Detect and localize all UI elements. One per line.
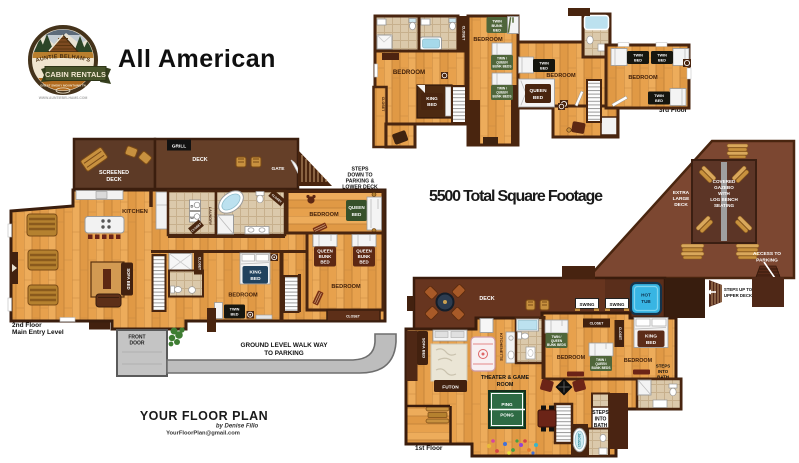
svg-text:1st Floor: 1st Floor — [415, 445, 443, 452]
svg-text:LAUNDRY: LAUNDRY — [208, 207, 212, 226]
svg-text:STEPS: STEPS — [592, 410, 609, 416]
svg-text:QUEEN: QUEEN — [356, 249, 372, 254]
svg-text:CABIN RENTALS: CABIN RENTALS — [45, 70, 106, 79]
svg-text:BEDROOM: BEDROOM — [309, 212, 339, 218]
svg-text:BUNK: BUNK — [492, 24, 503, 28]
svg-text:GROUND LEVEL WALK WAY: GROUND LEVEL WALK WAY — [241, 342, 329, 349]
svg-text:BED: BED — [250, 276, 261, 282]
svg-text:BUNK BEDS: BUNK BEDS — [493, 95, 512, 99]
svg-text:COVERED: COVERED — [713, 179, 736, 184]
svg-text:JACUZZI: JACUZZI — [577, 433, 581, 447]
svg-text:PARKING: PARKING — [756, 258, 778, 264]
svg-text:TWIN: TWIN — [492, 20, 502, 24]
svg-text:DECK: DECK — [192, 157, 207, 163]
svg-text:CLOSET: CLOSET — [618, 327, 622, 340]
svg-text:BED: BED — [230, 313, 238, 317]
svg-text:CLOSET: CLOSET — [462, 26, 466, 41]
svg-text:GATE: GATE — [272, 166, 286, 172]
svg-text:CLOSET: CLOSET — [590, 322, 605, 326]
svg-text:All American: All American — [118, 45, 276, 73]
svg-text:HOT: HOT — [641, 293, 651, 298]
svg-text:WWW.AUNTIEBELHAMS.COM: WWW.AUNTIEBELHAMS.COM — [39, 96, 88, 100]
svg-text:INTO: INTO — [658, 369, 669, 374]
svg-text:BEDROOM: BEDROOM — [473, 37, 503, 43]
svg-text:TWIN: TWIN — [539, 62, 549, 66]
svg-text:GRILL: GRILL — [172, 144, 186, 150]
svg-text:TWIN: TWIN — [633, 54, 643, 58]
svg-text:GAZEBO: GAZEBO — [714, 185, 734, 190]
svg-text:BUNK BEDS: BUNK BEDS — [547, 343, 566, 347]
svg-text:BUNK BEDS: BUNK BEDS — [493, 65, 512, 69]
svg-text:BEDROOM: BEDROOM — [331, 284, 361, 290]
svg-text:BED: BED — [658, 59, 666, 63]
svg-text:TO PARKING: TO PARKING — [264, 350, 304, 357]
svg-text:KITCHENETTE: KITCHENETTE — [499, 333, 504, 361]
svg-text:BEDROOM: BEDROOM — [557, 355, 586, 361]
svg-text:STEPS: STEPS — [656, 364, 670, 369]
svg-text:SWING: SWING — [610, 302, 625, 307]
svg-text:UPPER DECK: UPPER DECK — [724, 293, 753, 298]
svg-text:YourFloorPlan@gmail.com: YourFloorPlan@gmail.com — [166, 431, 240, 437]
svg-text:QUEEN: QUEEN — [348, 205, 365, 210]
svg-text:TWIN: TWIN — [657, 54, 667, 58]
svg-text:BEDROOM: BEDROOM — [546, 73, 576, 79]
svg-text:Main Entry Level: Main Entry Level — [12, 329, 64, 336]
svg-text:LARGE: LARGE — [673, 196, 691, 202]
svg-text:DECK: DECK — [479, 296, 494, 302]
svg-text:KING: KING — [426, 96, 438, 101]
svg-text:by Denise Fillo: by Denise Fillo — [216, 424, 259, 430]
svg-text:BEDROOM: BEDROOM — [628, 75, 658, 81]
svg-text:BEDROOM: BEDROOM — [624, 358, 653, 364]
svg-text:INTO: INTO — [595, 417, 607, 423]
svg-text:TUB: TUB — [641, 299, 651, 304]
svg-text:CLOSET: CLOSET — [346, 315, 361, 319]
svg-text:FUTON: FUTON — [442, 385, 459, 391]
svg-text:EXTRA: EXTRA — [673, 190, 690, 196]
svg-text:SOFA BED: SOFA BED — [126, 268, 131, 289]
svg-text:BED: BED — [493, 29, 501, 33]
svg-text:KITCHEN: KITCHEN — [122, 209, 148, 215]
svg-text:TWIN: TWIN — [654, 94, 664, 98]
svg-text:BED: BED — [646, 340, 657, 346]
svg-text:YOUR FLOOR PLAN: YOUR FLOOR PLAN — [140, 409, 268, 423]
svg-text:ACCESS TO: ACCESS TO — [753, 251, 781, 257]
svg-text:BEDROOM: BEDROOM — [228, 293, 258, 299]
svg-text:TWIN: TWIN — [230, 308, 240, 312]
svg-text:BED: BED — [359, 260, 368, 265]
svg-text:LOG BENCH: LOG BENCH — [710, 197, 738, 202]
svg-text:STEPS UP TO: STEPS UP TO — [724, 287, 753, 292]
svg-text:ROOM: ROOM — [497, 382, 514, 388]
svg-text:BED: BED — [634, 59, 642, 63]
svg-text:BED: BED — [655, 99, 663, 103]
svg-text:PING: PING — [501, 402, 513, 407]
svg-text:KING: KING — [250, 270, 262, 276]
svg-text:SWING: SWING — [580, 302, 595, 307]
svg-text:BED: BED — [540, 67, 548, 71]
svg-text:BED: BED — [352, 212, 362, 217]
svg-text:D: D — [191, 204, 194, 209]
svg-text:QUEEN: QUEEN — [317, 249, 333, 254]
svg-text:GREAT SMOKY MOUNTAINS TN: GREAT SMOKY MOUNTAINS TN — [40, 84, 86, 88]
svg-text:BEDROOM: BEDROOM — [393, 69, 425, 76]
svg-text:BUNK: BUNK — [319, 254, 333, 259]
svg-text:QUEEN: QUEEN — [529, 88, 547, 94]
svg-text:2nd Floor: 2nd Floor — [12, 322, 42, 329]
svg-text:W: W — [190, 215, 194, 220]
svg-text:DOOR: DOOR — [130, 341, 145, 347]
svg-text:THEATER & GAME: THEATER & GAME — [481, 375, 530, 381]
svg-text:5500 Total Square Footage: 5500 Total Square Footage — [429, 188, 603, 205]
svg-text:BED: BED — [320, 260, 329, 265]
svg-text:BUNK BEDS: BUNK BEDS — [592, 366, 611, 370]
svg-text:SCREENED: SCREENED — [99, 170, 129, 176]
svg-text:DECK: DECK — [106, 177, 121, 183]
svg-text:CLOSET: CLOSET — [381, 97, 385, 112]
svg-text:WITH: WITH — [718, 191, 730, 196]
svg-text:BED: BED — [533, 95, 544, 101]
svg-text:CLOSET: CLOSET — [198, 257, 202, 270]
svg-text:SEATING: SEATING — [714, 203, 735, 208]
svg-text:BED: BED — [427, 102, 437, 107]
svg-text:KING: KING — [645, 334, 657, 340]
svg-text:SOFA BED: SOFA BED — [422, 338, 427, 358]
svg-text:PONG: PONG — [500, 413, 514, 418]
svg-text:DECK: DECK — [674, 202, 688, 208]
svg-text:BUNK: BUNK — [358, 254, 372, 259]
